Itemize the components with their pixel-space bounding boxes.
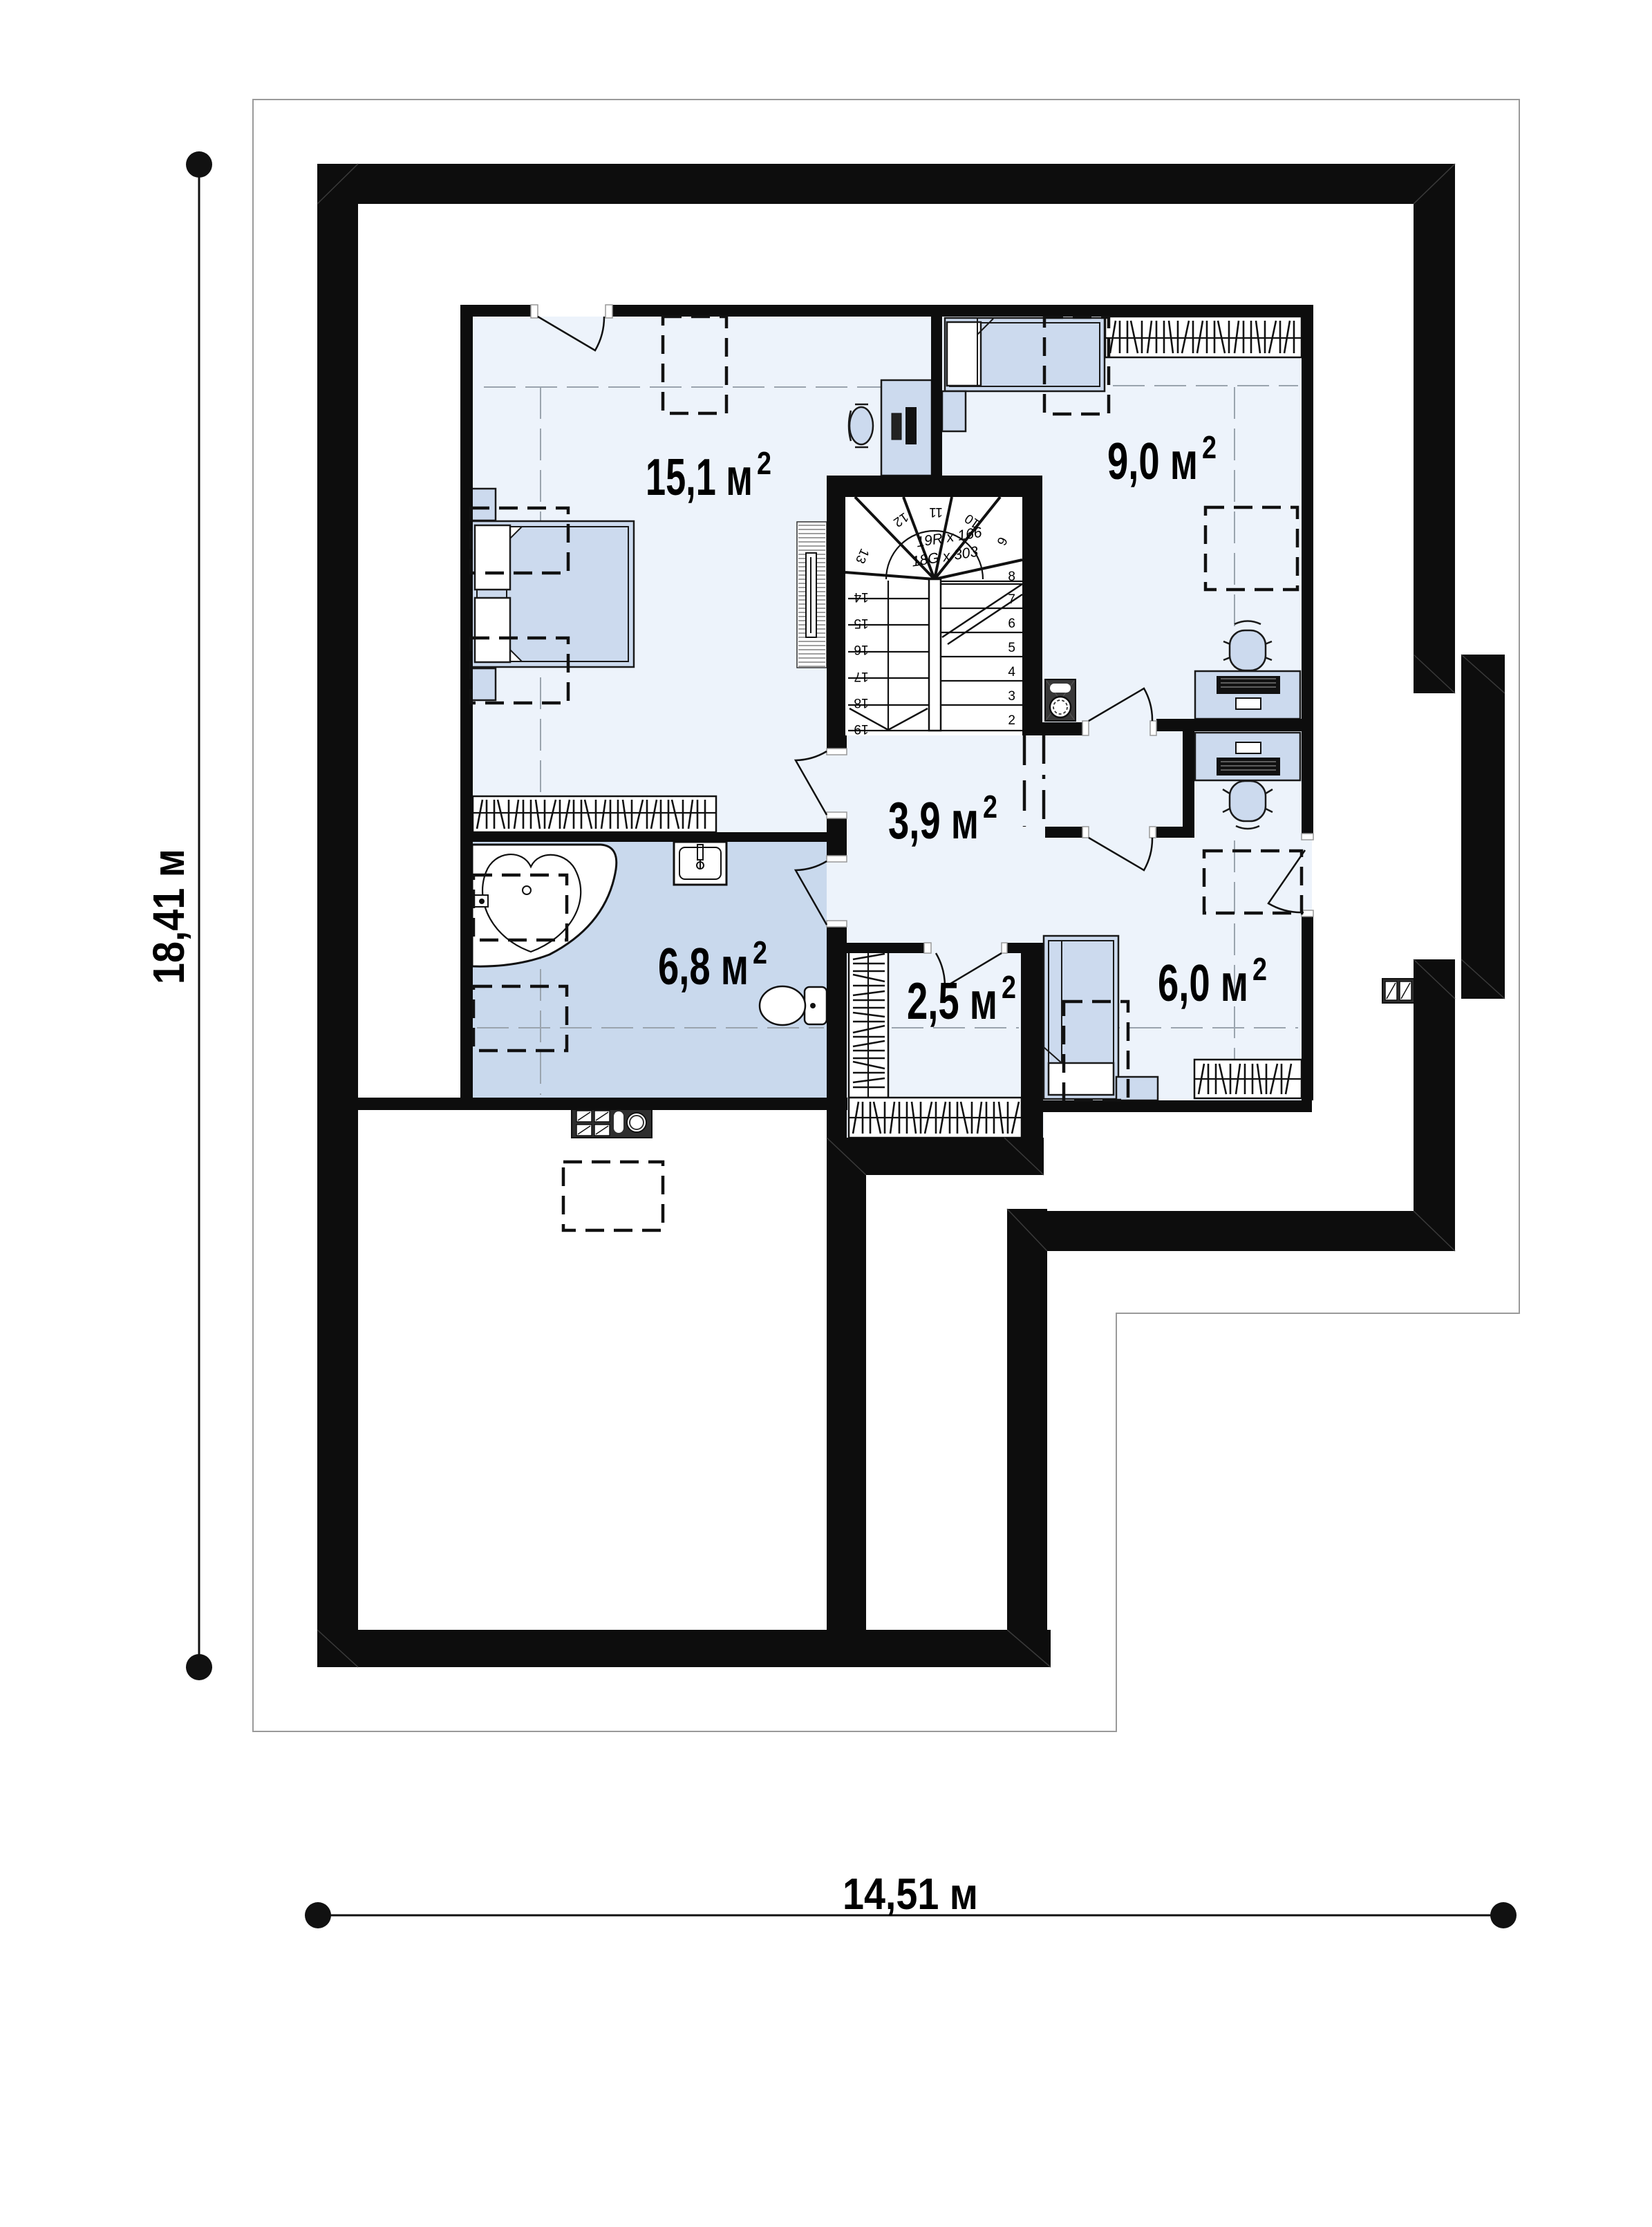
svg-text:9,0 м: 9,0 м [1107,432,1198,490]
svg-text:2: 2 [1008,713,1015,728]
svg-text:2: 2 [757,445,771,481]
svg-text:18: 18 [854,695,868,710]
svg-text:18,41 м: 18,41 м [144,849,194,984]
svg-text:15: 15 [854,616,868,630]
svg-text:11: 11 [929,505,943,519]
svg-text:16: 16 [854,642,868,657]
svg-text:6,0 м: 6,0 м [1158,954,1248,1012]
svg-text:6: 6 [1008,617,1015,631]
svg-text:2: 2 [753,934,767,970]
svg-text:8: 8 [1008,570,1015,584]
svg-text:17: 17 [854,669,868,684]
svg-text:2: 2 [1252,951,1267,987]
svg-text:14: 14 [854,590,869,604]
svg-text:14,51 м: 14,51 м [843,1869,978,1919]
svg-text:2: 2 [983,789,997,825]
svg-text:3: 3 [1008,689,1015,704]
svg-text:2: 2 [1202,429,1217,465]
svg-text:19: 19 [854,722,868,736]
svg-text:4: 4 [1008,665,1015,679]
svg-text:2,5 м: 2,5 м [907,972,997,1030]
svg-text:6,8 м: 6,8 м [658,937,749,995]
svg-text:3,9 м: 3,9 м [888,791,979,849]
svg-text:15,1 м: 15,1 м [646,448,753,506]
svg-text:2: 2 [1002,969,1016,1005]
svg-text:7: 7 [1008,592,1015,607]
svg-text:5: 5 [1008,641,1015,655]
